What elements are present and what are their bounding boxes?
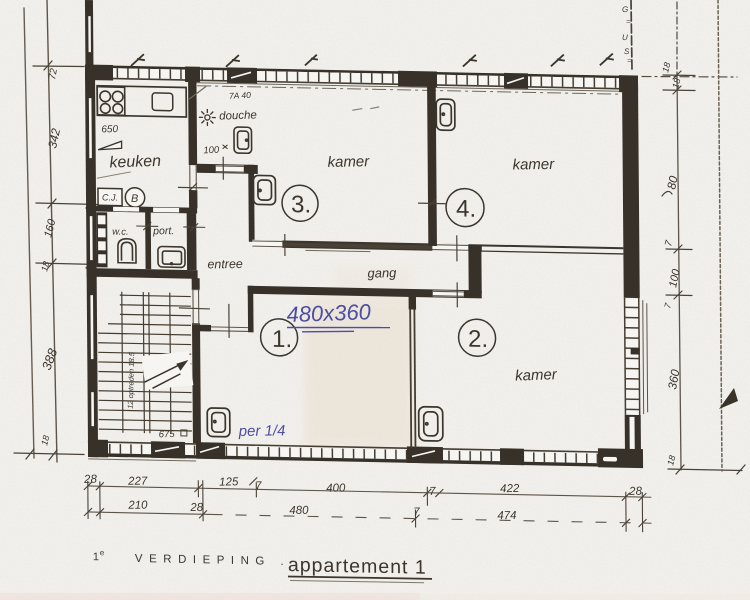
svg-text:675: 675 (158, 429, 175, 441)
svg-text:400: 400 (326, 482, 346, 494)
svg-text:douche: douche (219, 109, 257, 122)
svg-text:125: 125 (219, 476, 239, 488)
svg-text:B: B (131, 193, 138, 205)
svg-text:12 optreden 18.5: 12 optreden 18.5 (126, 351, 137, 409)
svg-text:1.: 1. (272, 326, 292, 353)
svg-text:480: 480 (289, 505, 309, 517)
svg-text:e: e (100, 548, 105, 557)
svg-text:w.c.: w.c. (112, 227, 128, 238)
svg-text:3.: 3. (291, 191, 311, 218)
svg-text:G: G (622, 5, 628, 14)
svg-text:kamer: kamer (515, 366, 559, 384)
svg-text:7: 7 (429, 486, 437, 498)
svg-text:port.: port. (152, 225, 175, 237)
svg-text:650: 650 (101, 124, 119, 135)
svg-text:keuken: keuken (109, 153, 162, 172)
svg-text:=: = (626, 17, 631, 26)
svg-text:per 1/4: per 1/4 (237, 422, 285, 440)
svg-text:gang: gang (367, 265, 397, 280)
svg-text:kamer: kamer (512, 156, 555, 174)
svg-text:U: U (622, 33, 628, 42)
svg-text:28: 28 (189, 502, 204, 514)
svg-text:7: 7 (255, 480, 263, 492)
svg-text:C.J.: C.J. (102, 192, 118, 202)
svg-text:28: 28 (83, 473, 98, 485)
svg-text:1: 1 (93, 551, 99, 563)
svg-text:kamer: kamer (327, 153, 370, 171)
svg-text:S: S (624, 47, 630, 56)
svg-text:480x360: 480x360 (286, 299, 373, 327)
svg-text:2.: 2. (468, 326, 488, 353)
svg-text:28: 28 (628, 486, 643, 498)
svg-text:210: 210 (127, 500, 148, 512)
svg-text:entree: entree (207, 257, 243, 272)
svg-text:7: 7 (413, 506, 421, 518)
svg-text:227: 227 (127, 476, 148, 488)
svg-text:4.: 4. (456, 195, 476, 222)
svg-text:7A 40: 7A 40 (229, 90, 252, 101)
svg-text:474: 474 (497, 510, 517, 522)
svg-text:422: 422 (500, 483, 520, 495)
svg-text:100: 100 (203, 145, 220, 157)
svg-text:appartement 1: appartement 1 (288, 554, 427, 579)
